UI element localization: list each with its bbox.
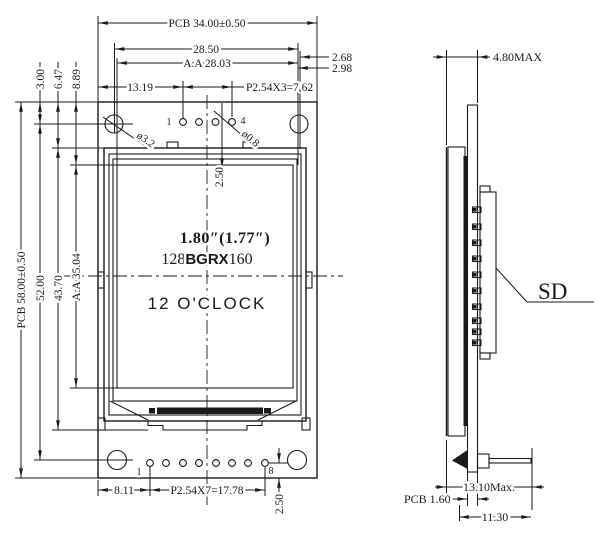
screen-size-label: 1.80″(1.77″): [180, 230, 270, 247]
drawing-canvas: PCB 34.00±0.50 28.50 A.A 28.03 13.19 P2.…: [0, 0, 600, 539]
dim-hole-span-v: 52.00: [35, 275, 47, 301]
dim-pcb-width: PCB 34.00±0.50: [169, 18, 246, 30]
bottom-pin-6: [229, 460, 236, 467]
dim-6-47: 6.47: [53, 69, 65, 89]
dimension-lines-side: [433, 57, 544, 517]
bottom-pin-holes: [147, 460, 269, 467]
lcd-module-outline-drawing: PCB 34.00±0.50 28.50 A.A 28.03 13.19 P2.…: [0, 0, 600, 539]
sd-label: SD: [538, 279, 567, 304]
dim-pcb-thickness: PCB 1.60: [404, 492, 451, 506]
bottom-pin-4: [196, 460, 203, 467]
module-body-side: [448, 147, 465, 436]
lcd-frame: [98, 142, 312, 430]
dim-thickness: 4.80MAX: [493, 50, 542, 64]
header-body: [478, 454, 490, 468]
active-area: [117, 165, 293, 388]
sd-card-socket: [473, 186, 497, 359]
mounting-hole-top-right: [290, 115, 308, 133]
top-pin-3: [212, 119, 219, 126]
lcd-frame-outer: [104, 148, 306, 421]
header-pin-lead: [489, 459, 531, 464]
frame-top-tab-left: [167, 142, 178, 148]
solder-fillet: [452, 450, 468, 469]
sd-socket-tab-top: [480, 186, 490, 192]
dim-active-height: A.A 35.04: [71, 253, 83, 301]
dim-3-00: 3.00: [35, 69, 47, 89]
dim-bottom-2-50: 2.50: [274, 494, 286, 514]
bottom-pin-7: [245, 460, 252, 467]
sd-socket-tab-bottom: [480, 353, 490, 359]
extension-lines-side: [447, 50, 533, 521]
fpc-end-pad-left: [149, 408, 155, 414]
fpc-end-pad-right: [264, 408, 271, 414]
lcd-cell-side: [464, 156, 468, 426]
dim-active-width: A.A 28.03: [183, 58, 231, 70]
dim-pin-length: 13.10Max.: [463, 480, 515, 494]
bottom-pin-label-8: 8: [269, 466, 274, 477]
lcd-frame-inner: [109, 154, 301, 415]
bottom-pin-2: [163, 460, 170, 467]
sd-socket-body: [480, 192, 496, 353]
frame-side-tab-left: [98, 272, 104, 288]
frame-corner-diagonal-right: [258, 401, 296, 420]
bottom-pin-8: [262, 460, 269, 467]
dim-bottom-pin-offset: 8.11: [114, 485, 134, 497]
top-pin-2: [196, 119, 203, 126]
viewing-direction-label: 12 O'CLOCK: [148, 294, 267, 313]
bottom-pin-3: [180, 460, 187, 467]
resolution-suffix: 160: [229, 251, 253, 268]
dim-top-2-50: 2.50: [214, 167, 226, 187]
bottom-pin-1: [147, 460, 154, 467]
dim-top-pin-offset: 13.19: [127, 82, 153, 94]
dim-depth: 11.30: [482, 510, 509, 524]
lcd-glass: [113, 159, 297, 401]
dim-8-89: 8.89: [71, 69, 83, 89]
frame-corner-diagonal-left: [110, 401, 148, 420]
mounting-hole-bottom-right: [288, 451, 307, 470]
side-view: 4.80MAX SD 13.10Max. PCB 1.60 11.30: [404, 50, 594, 524]
dim-hole-span-h: 28.50: [193, 44, 219, 56]
dim-top-pin-pitch: P2.54X3=7.62: [246, 82, 313, 94]
front-view: PCB 34.00±0.50 28.50 A.A 28.03 13.19 P2.…: [15, 16, 352, 514]
top-pin-1: [180, 119, 187, 126]
dim-pcb-height: PCB 58.00±0.50: [16, 251, 28, 328]
resolution-order: BGRX: [185, 251, 228, 268]
frame-side-tab-right: [306, 272, 312, 288]
header-pin: [452, 450, 531, 469]
top-pin-label-1: 1: [167, 117, 172, 128]
frame-bottom-tab: [148, 421, 262, 430]
top-pin-label-4: 4: [241, 116, 246, 127]
bottom-pin-5: [213, 460, 220, 467]
resolution-label: 128BGRX160: [161, 251, 252, 268]
bottom-pin-label-1: 1: [137, 467, 142, 478]
fpc-connector-bar: [157, 408, 263, 415]
dim-edge-2-98: 2.98: [332, 63, 352, 75]
dim-module-height: 43.70: [53, 275, 65, 301]
resolution-prefix: 128: [161, 251, 185, 268]
dim-bottom-pin-pitch: P2.54X7=17.78: [171, 485, 244, 497]
